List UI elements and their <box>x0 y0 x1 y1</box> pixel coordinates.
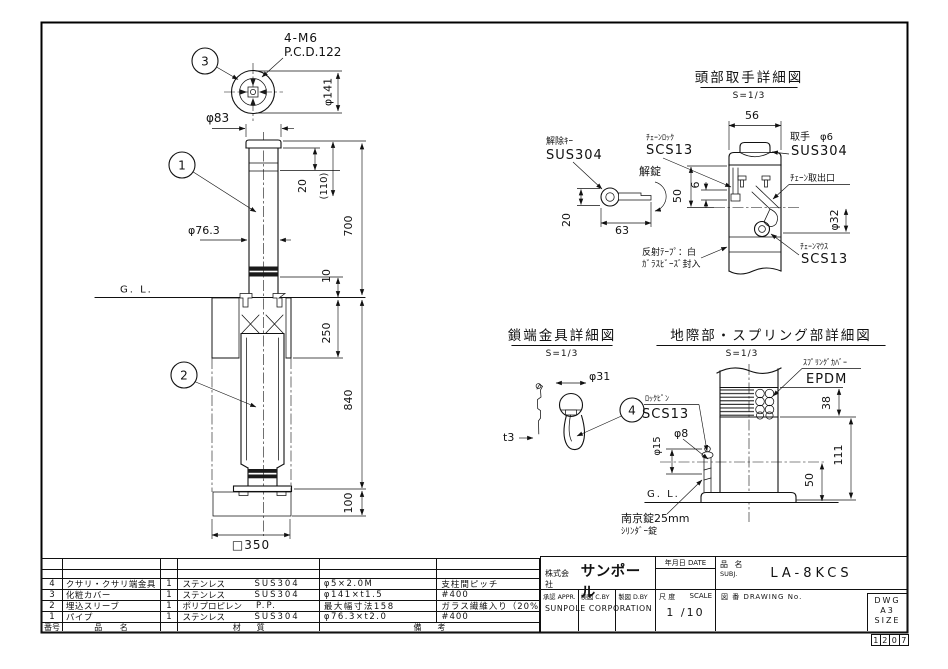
head-dim-56: 56 <box>745 109 759 122</box>
part-name: クサリ・クサリ端金具 <box>63 579 161 589</box>
chain-dim-dia31: φ31 <box>589 370 610 383</box>
dim-sq350: □350 <box>232 538 270 552</box>
balloon-4-label: 4 <box>628 404 636 418</box>
title-block: 株式会社 サンポール SUNPOLE CORPORATION 年月日 DATE … <box>540 556 908 633</box>
release-key-material: SUS304 <box>546 148 603 163</box>
drawing-page: 3 4-M6 P.C.D.122 φ141 φ83 1 2 φ76.3 <box>0 0 948 669</box>
part-qty: 1 <box>161 601 179 611</box>
header-material: 材 質 <box>178 623 319 631</box>
table-row: 4 クサリ・クサリ端金具 1 ステンレスSUS304 φ5×2.0M 支柱間ピッ… <box>42 579 539 590</box>
sheet-size-box: DWG A3 SIZE <box>867 593 907 631</box>
unlock-label: 解錠 <box>639 164 661 178</box>
stamp-digit: 7 <box>900 634 910 646</box>
part-spec: φ76.3×t2.0 <box>320 612 438 622</box>
bollard-head-drawing <box>714 143 800 275</box>
dim-700: 700 <box>342 216 355 237</box>
scale-cell: 尺 度 SCALE 1 /10 <box>656 590 716 631</box>
size-line-3: SIZE <box>868 616 907 626</box>
signature-cells: 承認 APPR. 検図 C.BY 製図 D.BY <box>541 590 656 631</box>
part-no: 4 <box>42 579 63 589</box>
part-spec: φ5×2.0M <box>320 579 438 589</box>
padlock-note-1: 南京錠25mm <box>621 511 689 525</box>
stamp-digit: 1 <box>871 634 881 646</box>
drawn-by-label: 製図 D.BY <box>616 590 655 631</box>
chain-outlet-label: ﾁｪｰﾝ取出口 <box>790 172 835 184</box>
head-detail-view: 頭部取手詳細図 S=1/3 解錠 解除ｷｰ SUS304 20 63 <box>546 70 850 274</box>
ground-level-label: G. L. <box>120 285 153 296</box>
ground-gl-label: G. L. <box>647 489 680 500</box>
scale-label-en: SCALE <box>690 592 712 602</box>
part-qty: 1 <box>161 612 179 622</box>
part-material: ステンレスSUS304 <box>178 590 319 600</box>
stamp-digit: 2 <box>881 634 891 646</box>
part-name: 化粧カバー <box>63 590 161 600</box>
header-name: 品 名 <box>63 623 161 631</box>
part-note: ガラス繊維入り（20%） <box>437 601 539 611</box>
part-no: 1 <box>42 612 63 622</box>
dim-20: 20 <box>296 179 309 193</box>
part-name: パイプ <box>63 612 161 622</box>
chain-lock-label: ﾁｪｰﾝﾛｯｸ <box>646 133 674 142</box>
balloon-1-label: 1 <box>178 159 186 173</box>
size-line-2: A3 <box>868 606 907 616</box>
dim-dia83: φ83 <box>206 111 229 125</box>
table-row-empty <box>42 559 539 570</box>
head-detail-title: 頭部取手詳細図 <box>695 70 804 86</box>
scale-label-jp: 尺 度 <box>659 592 675 602</box>
tape-note-2: ｶﾞﾗｽﾋﾞｰｽﾞ封入 <box>642 258 701 270</box>
chain-mouth-label: ﾁｪｰﾝﾏｳｽ <box>800 242 828 251</box>
part-material: ステンレスSUS304 <box>178 579 319 589</box>
dim-250: 250 <box>320 323 333 344</box>
ground-detail-scale: S=1/3 <box>726 349 759 359</box>
handle-label: 取手 φ6 <box>790 130 833 143</box>
table-row: 2 埋込スリーブ 1 ポリプロピレンP.P. 最大幅寸法158 ガラス繊維入り（… <box>42 601 539 612</box>
release-key-label: 解除ｷｰ <box>546 135 574 147</box>
chain-end-detail-view: 鎖端金具詳細図 S=1/3 φ31 t3 4 <box>503 328 644 450</box>
subject-cell: 品 名 SUBJ. LA-8KCS <box>716 557 907 589</box>
ground-dim-38: 38 <box>820 396 833 410</box>
chain-mouth-material: SCS13 <box>801 252 848 267</box>
chain-end-fitting-drawing <box>536 384 584 450</box>
form-number-stamp: 1 2 0 7 <box>871 634 909 646</box>
drawing-no-cell: 図 番 DRAWING No. DWG A3 SIZE <box>716 590 907 631</box>
key-dim-20: 20 <box>560 213 573 227</box>
ground-dim-dia15: φ15 <box>652 436 663 455</box>
handle-material: SUS304 <box>791 144 848 159</box>
concrete-hatch-left <box>212 298 239 358</box>
part-material: ポリプロピレンP.P. <box>178 601 319 611</box>
header-no: 番号 <box>42 623 63 631</box>
ground-spring-detail-view: 地際部・スプリング部詳細図 S=1/3 ｽﾌﾟﾘﾝｸﾞｶﾊﾞｰ <box>621 328 885 537</box>
post-cap <box>246 140 281 148</box>
lock-pin-label: ﾛｯｸﾋﾟﾝ <box>645 394 669 403</box>
stamp-digit: 0 <box>890 634 900 646</box>
padlock-note-2: ｼﾘﾝﾀﾞｰ錠 <box>621 525 657 537</box>
balloon-3-label: 3 <box>201 55 209 69</box>
table-row: 3 化粧カバー 1 ステンレスSUS304 φ141×t1.5 #400 <box>42 590 539 601</box>
part-spec: 最大幅寸法158 <box>320 601 438 611</box>
chain-detail-title: 鎖端金具詳細図 <box>508 328 617 344</box>
head-dim-dia32: φ32 <box>828 209 841 230</box>
key-dim-63: 63 <box>615 224 629 237</box>
release-key-drawing <box>601 188 651 206</box>
checked-by-label: 検図 C.BY <box>579 590 617 631</box>
dim-10: 10 <box>320 269 333 283</box>
head-dim-6: 6 <box>689 182 702 189</box>
part-note: 支柱間ピッチ <box>437 579 539 589</box>
chain-lock-material: SCS13 <box>646 143 693 158</box>
chain-dim-t3: t3 <box>503 431 514 444</box>
dim-dia763: φ76.3 <box>188 224 220 237</box>
part-qty: 1 <box>161 590 179 600</box>
head-dim-50: 50 <box>671 189 684 203</box>
part-note: #400 <box>437 590 539 600</box>
drawing-no-label: 図 番 DRAWING No. <box>721 592 802 602</box>
parts-table: 4 クサリ・クサリ端金具 1 ステンレスSUS304 φ5×2.0M 支柱間ピッ… <box>41 558 540 633</box>
date-label: 年月日 DATE <box>656 557 715 569</box>
part-spec: φ141×t1.5 <box>320 590 438 600</box>
size-line-1: DWG <box>868 596 907 606</box>
dim-100: 100 <box>342 493 355 514</box>
spring-cover-material: EPDM <box>806 372 847 387</box>
spring-cover-label: ｽﾌﾟﾘﾝｸﾞｶﾊﾞｰ <box>803 358 847 367</box>
date-cell: 年月日 DATE <box>656 557 716 589</box>
bolt-note: 4-M6 <box>284 31 318 45</box>
ground-dim-dia8: φ8 <box>674 427 688 440</box>
lock-pin-material: SCS13 <box>642 407 689 422</box>
table-header-row: 番号 品 名 材 質 備 考 <box>42 623 539 631</box>
main-view-right-dims: 20 (110) 700 10 250 840 100 <box>280 141 366 516</box>
concrete-hatch-right <box>286 298 291 358</box>
lock-receiver <box>240 294 285 334</box>
chain-detail-scale: S=1/3 <box>546 349 579 359</box>
part-material: ステンレスSUS304 <box>178 612 319 622</box>
part-note: #400 <box>437 612 539 622</box>
header-remarks: 備 考 <box>320 623 539 631</box>
ground-detail-title: 地際部・スプリング部詳細図 <box>670 328 872 344</box>
tape-note-1: 反射ﾃｰﾌﾟ：白 <box>642 246 696 258</box>
product-code: LA-8KCS <box>716 566 907 581</box>
part-name: 埋込スリーブ <box>63 601 161 611</box>
part-no: 3 <box>42 590 63 600</box>
ground-dim-50: 50 <box>803 473 816 487</box>
buried-sleeve <box>234 334 292 496</box>
company-prefix: 株式会社 <box>545 568 577 590</box>
ground-dim-111: 111 <box>832 445 845 466</box>
head-detail-scale: S=1/3 <box>733 91 766 101</box>
main-view-top-view: 3 4-M6 P.C.D.122 φ141 <box>192 31 342 121</box>
company-cell: 株式会社 サンポール SUNPOLE CORPORATION <box>541 557 656 589</box>
part-no: 2 <box>42 601 63 611</box>
table-row-empty <box>42 570 539 579</box>
pcd-note: P.C.D.122 <box>284 45 341 59</box>
dim-110: (110) <box>319 172 330 199</box>
scale-value: 1 /10 <box>656 606 715 619</box>
balloon-2-label: 2 <box>180 369 188 383</box>
dim-840: 840 <box>342 390 355 411</box>
table-row: 1 パイプ 1 ステンレスSUS304 φ76.3×t2.0 #400 <box>42 612 539 623</box>
dim-dia141: φ141 <box>322 78 335 106</box>
part-qty: 1 <box>161 579 179 589</box>
approved-by-label: 承認 APPR. <box>541 590 579 631</box>
